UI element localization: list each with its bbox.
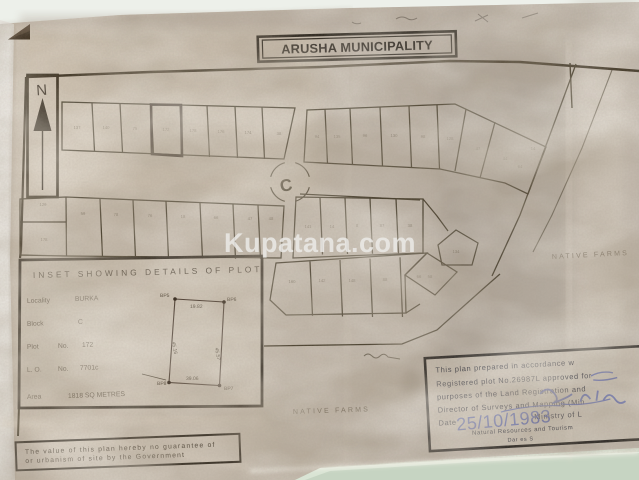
svg-text:Kupatana.com: Kupatana.com (224, 228, 416, 258)
